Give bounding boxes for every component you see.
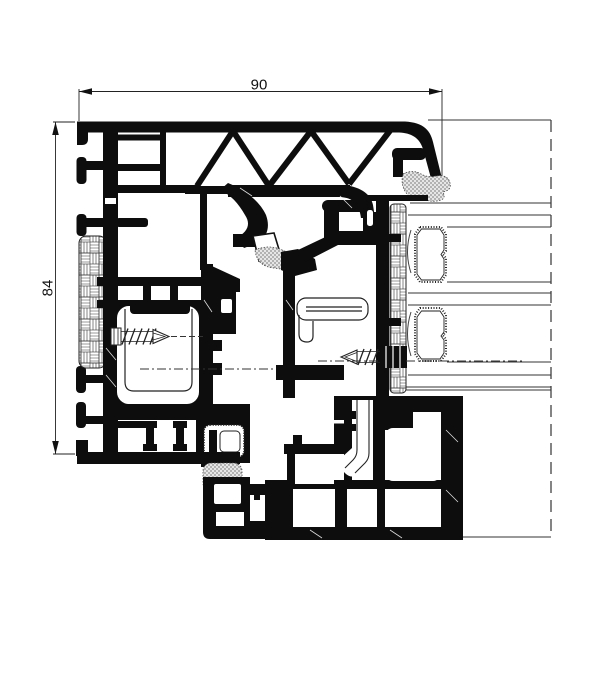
svg-text:90: 90 [251, 77, 268, 94]
svg-text:84: 84 [40, 280, 57, 297]
